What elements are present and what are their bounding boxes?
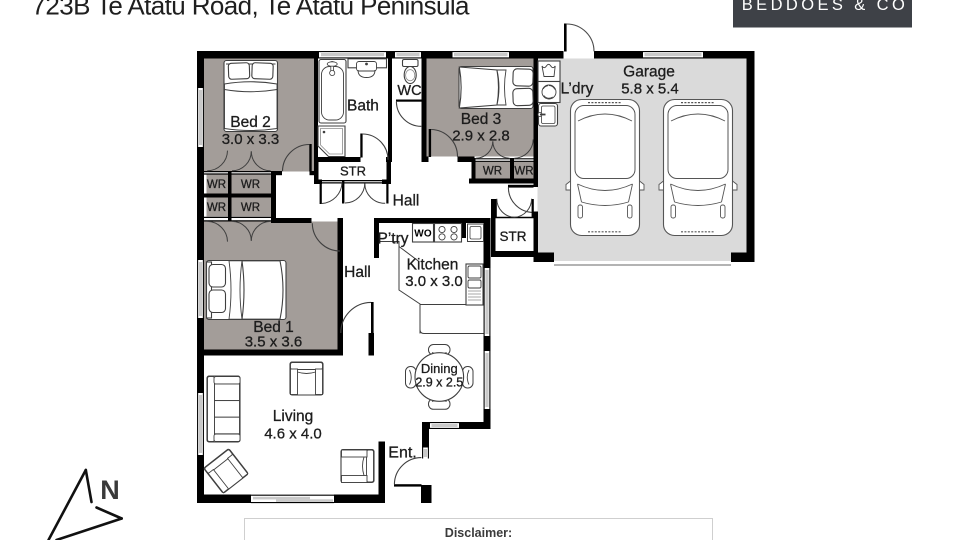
svg-text:Bed 2: Bed 2 (230, 114, 271, 131)
svg-text:L’dry: L’dry (561, 81, 594, 98)
svg-text:WR: WR (241, 202, 260, 214)
svg-text:WR: WR (514, 166, 533, 178)
svg-text:Living: Living (273, 408, 314, 425)
svg-text:WO: WO (414, 229, 432, 240)
svg-text:3.0 x 3.3: 3.0 x 3.3 (222, 131, 280, 148)
svg-text:WC: WC (397, 83, 421, 99)
svg-text:3.5 x 3.6: 3.5 x 3.6 (245, 334, 303, 351)
svg-text:STR: STR (500, 229, 527, 244)
svg-text:WR: WR (207, 179, 226, 191)
svg-text:Garage: Garage (623, 64, 675, 81)
svg-text:3.0 x 3.0: 3.0 x 3.0 (405, 273, 463, 290)
svg-text:WR: WR (483, 166, 502, 178)
svg-text:BEDDOES & CO: BEDDOES & CO (742, 0, 908, 14)
svg-text:723B Te Atatu Road, Te Atatu P: 723B Te Atatu Road, Te Atatu Peninsula (32, 0, 471, 21)
svg-text:Dining: Dining (421, 361, 458, 376)
svg-text:P’try: P’try (378, 231, 409, 248)
svg-text:2.9 x 2.8: 2.9 x 2.8 (452, 128, 510, 145)
svg-text:Bed 3: Bed 3 (461, 111, 502, 128)
svg-text:Bath: Bath (347, 98, 379, 115)
svg-text:5.8 x 5.4: 5.8 x 5.4 (621, 81, 679, 98)
svg-text:WR: WR (241, 179, 260, 191)
svg-text:Disclaimer:: Disclaimer: (445, 526, 512, 540)
svg-text:2.9 x 2.5: 2.9 x 2.5 (415, 376, 463, 390)
svg-text:4.6 x 4.0: 4.6 x 4.0 (264, 426, 322, 443)
svg-text:WR: WR (207, 202, 226, 214)
svg-text:Hall: Hall (393, 193, 420, 210)
svg-text:Hall: Hall (344, 264, 371, 281)
svg-text:Ent.: Ent. (388, 445, 416, 462)
svg-text:N: N (100, 475, 120, 505)
svg-text:Kitchen: Kitchen (407, 257, 459, 274)
svg-text:STR: STR (340, 164, 366, 179)
